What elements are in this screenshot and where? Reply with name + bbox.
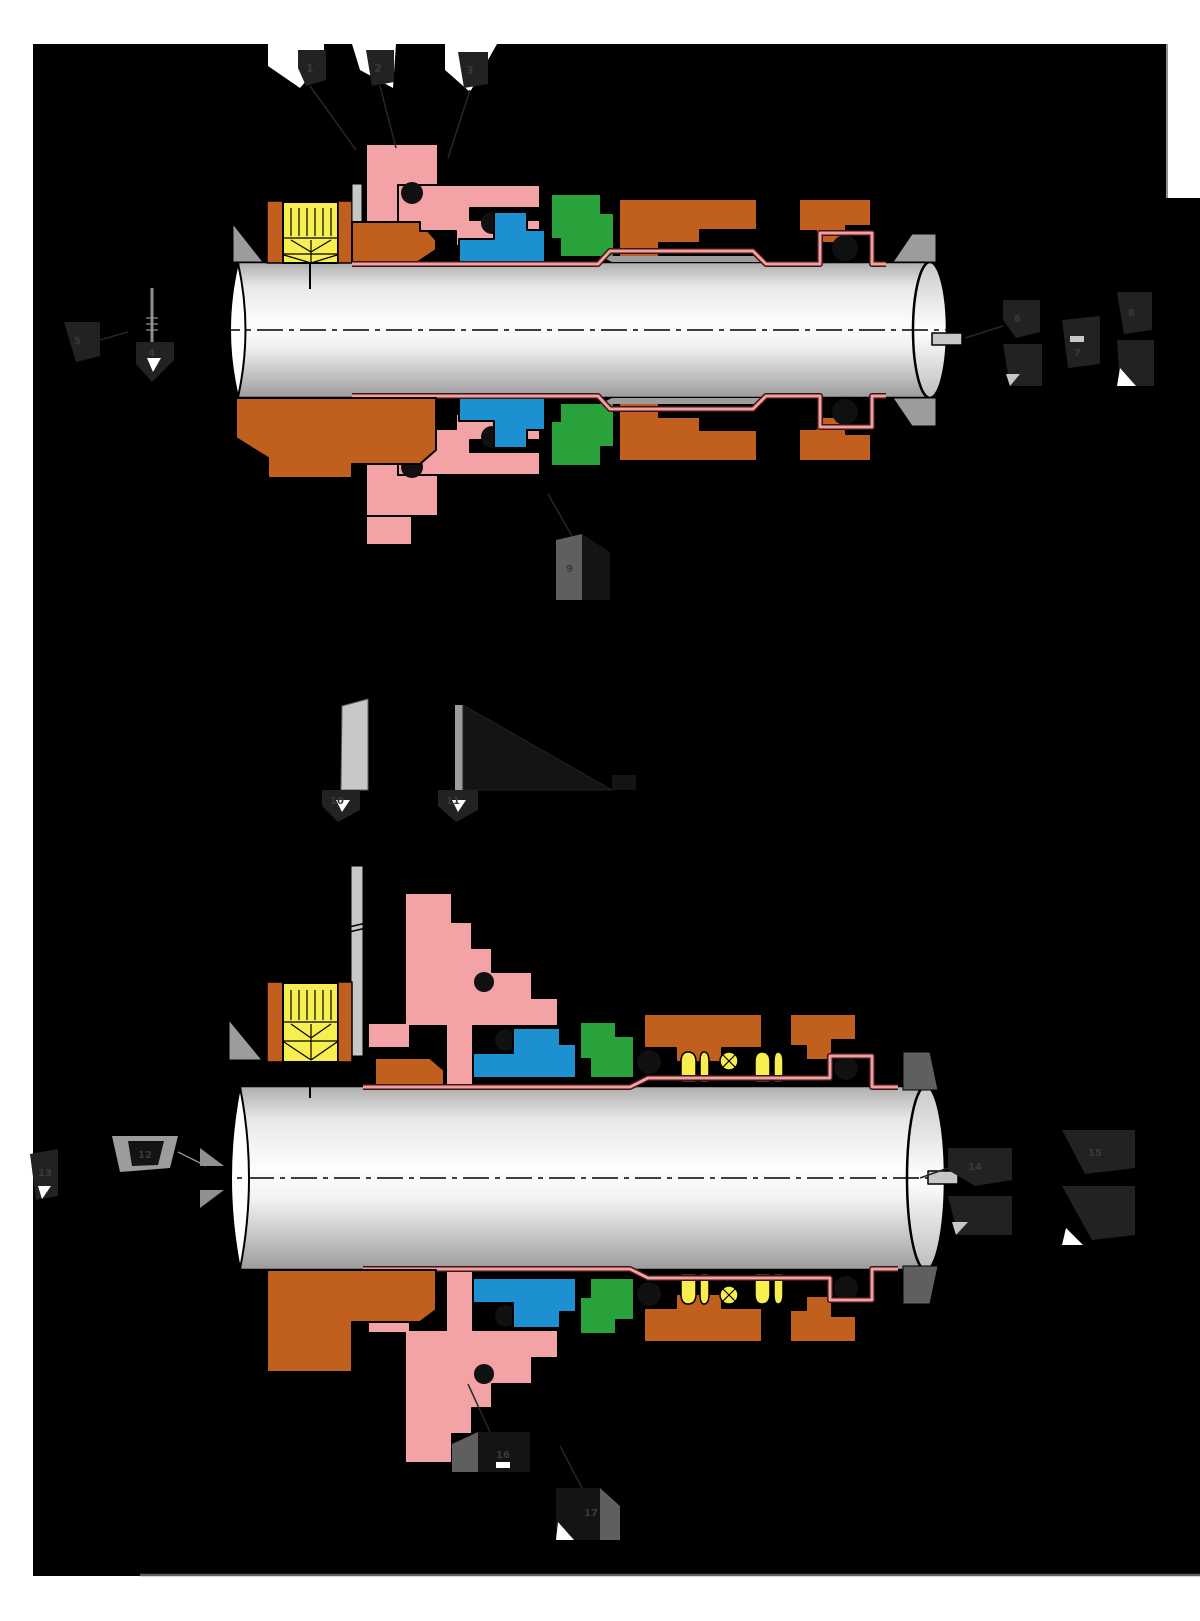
callout-label: 6 (1014, 314, 1021, 325)
callout-label: 5 (74, 336, 81, 347)
callout-label: 4 (148, 348, 155, 359)
callout-label: 2 (374, 62, 382, 75)
callout-label: 10 (330, 796, 344, 807)
o-ring-mirror (474, 1364, 494, 1384)
spring-retainer-right (338, 201, 352, 263)
callout-label: 15 (1088, 1148, 1102, 1159)
callout-label: 17 (584, 1508, 598, 1519)
drive-pin (351, 866, 363, 1056)
callout-label: 12 (138, 1150, 152, 1161)
gland-plate-foot (366, 516, 412, 545)
o-ring (401, 182, 423, 204)
gasket-detail (341, 699, 368, 790)
callout-label: 9 (566, 564, 573, 575)
spring-retainer-left (267, 982, 283, 1062)
drive-collar (375, 1058, 444, 1086)
callout-label: 13 (38, 1168, 52, 1179)
seal-diagram-figure: 1234567891011121314151617 (0, 0, 1200, 1621)
o-ring (834, 1056, 858, 1080)
callout-label: 16 (496, 1450, 510, 1461)
sleeve-spacer (600, 256, 766, 262)
o-ring-mirror (637, 1282, 661, 1306)
callout-label: 8 (1128, 308, 1135, 319)
wedge-foot (612, 775, 636, 790)
o-ring-mirror (832, 399, 858, 425)
o-ring (474, 972, 494, 992)
o-ring (637, 1050, 661, 1074)
callout-label: 3 (466, 64, 474, 77)
o-ring (832, 235, 858, 261)
o-ring-mirror (834, 1276, 858, 1300)
lock-tab (352, 184, 362, 222)
callout-label: 7 (1074, 348, 1081, 359)
page: 1234567891011121314151617 (0, 0, 1200, 1621)
callout-label: 14 (968, 1162, 982, 1173)
spring-retainer-right (338, 982, 352, 1062)
spring-retainer-left (267, 201, 283, 263)
shaft-stub (932, 333, 962, 345)
flag-notch (496, 1462, 510, 1468)
callout-label: 11 (446, 796, 460, 807)
gasket-bar (455, 705, 463, 790)
sleeve-spacer-mirror (600, 398, 766, 404)
flag-notch (1070, 336, 1084, 342)
callout-label: 1 (306, 62, 314, 75)
shapes-layer: 1234567891011121314151617 (30, 44, 1200, 1576)
